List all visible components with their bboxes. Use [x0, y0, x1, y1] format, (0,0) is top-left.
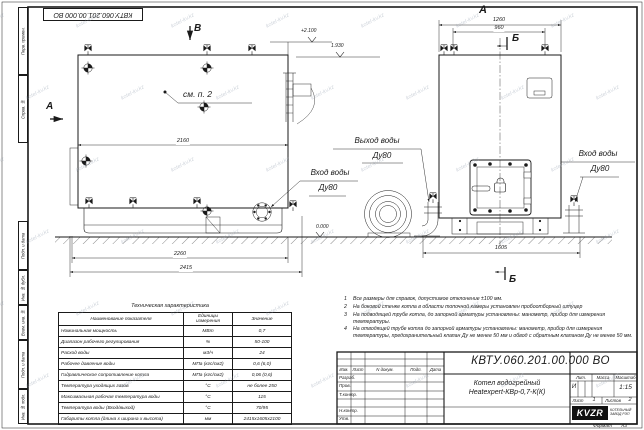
spec-row: Температура уходящих газов°Сне более 250: [59, 381, 292, 392]
tb-lit-value: И: [570, 384, 578, 390]
inlet-dn-front: Ду80: [591, 165, 610, 173]
elev-flue: 1.930: [330, 44, 345, 49]
spec-cell: Максимальная рабочая температура воды: [59, 392, 184, 403]
note-item: 1Все размеры для справок, допустимое отк…: [344, 296, 636, 303]
note-text: На отводящей трубе котла до запорной арм…: [353, 326, 636, 340]
tb-col-list: Лист: [351, 368, 365, 372]
top-stamp: КВТУ.060.201.00.000 ВО: [43, 8, 143, 21]
spec-cell: 0,06 (0,6): [233, 370, 292, 381]
tb-col-data: Дата: [427, 368, 444, 372]
spec-row: Температура воды (Вход/выход)°С70/95: [59, 403, 292, 414]
tb-sheets-value: 2: [625, 398, 635, 404]
spec-cell: м3/ч: [184, 348, 233, 359]
note-text: На подводящей трубе котла, до запорной а…: [353, 312, 636, 326]
spec-row: Максимальная рабочая температура воды°С1…: [59, 392, 292, 403]
spec-cell: °С: [184, 392, 233, 403]
outlet-dn: Ду80: [373, 152, 392, 160]
spec-cell: Номинальная мощность: [59, 326, 184, 337]
margin-box-vzam-inv: Взам. инв. №: [18, 305, 28, 340]
tb-row-tkontr: Т.контр.: [339, 393, 357, 398]
note-number: 4: [344, 326, 353, 340]
note-number: 1: [344, 296, 353, 303]
product-name-line2: Heatexpert-КВр-0,7-К(К): [444, 389, 570, 396]
view-label-a-left: А: [46, 102, 53, 112]
spec-header-row: Наименование показателя Единицы измерени…: [59, 313, 292, 326]
drawing-sheet: КВТУ.060.201.00.000 ВО Перв. примен. Спр…: [0, 0, 644, 430]
dim-2160: 2160: [176, 139, 190, 145]
spec-cell: Расход воды: [59, 348, 184, 359]
tb-row-utv: Утв.: [339, 417, 349, 422]
view-label-v: В: [194, 24, 201, 34]
margin-label: Перв. примен.: [21, 27, 26, 55]
spec-row: Диапазон рабочего регулирования%50-100: [59, 337, 292, 348]
note-text: На боковой стенке котла в области топочн…: [353, 304, 636, 311]
spec-cell: Гидравлическое сопротивление котла: [59, 370, 184, 381]
note-text: Все размеры для справок, допустимое откл…: [353, 296, 636, 303]
spec-cell: 2415х1605х2100: [233, 414, 292, 425]
tb-col-ndoc: N докум.: [365, 368, 405, 372]
margin-box-sprav: Справ. №: [18, 75, 28, 143]
tb-sheets-label: Листов: [603, 399, 623, 403]
view-label-a-front: А: [479, 5, 487, 16]
spec-table-body: Номинальная мощностьМВт0,7Диапазон рабоч…: [59, 326, 292, 425]
text-layer: КВТУ.060.201.00.000 ВО Перв. примен. Спр…: [0, 0, 644, 430]
tb-col-izm: Изм.: [337, 368, 351, 372]
doc-number: КВТУ.060.201.00.000 ВО: [444, 356, 637, 368]
spec-cell: МПа (кгс/см2): [184, 359, 233, 370]
margin-label: Подп. и дата: [21, 232, 26, 258]
section-label-b-top: Б: [512, 34, 519, 44]
spec-row: Номинальная мощностьМВт0,7: [59, 326, 292, 337]
spec-row: Рабочее давление водыМПа (кгс/см2)0,6 (6…: [59, 359, 292, 370]
spec-cell: 0,7: [233, 326, 292, 337]
top-stamp-text: КВТУ.060.201.00.000 ВО: [53, 11, 132, 18]
margin-label: Инв. № подл.: [21, 393, 26, 419]
notes-list: 1Все размеры для справок, допустимое отк…: [344, 296, 636, 341]
spec-cell: Диапазон рабочего регулирования: [59, 337, 184, 348]
spec-header-units: Единицы измерения: [184, 313, 233, 326]
tb-sheet-value: 1: [588, 398, 600, 404]
spec-row: Гидравлическое сопротивление котлаМПа (к…: [59, 370, 292, 381]
margin-label: Подп. и дата: [21, 351, 26, 377]
tb-scale-value: 1:15: [614, 385, 637, 392]
spec-cell: Рабочее давление воды: [59, 359, 184, 370]
tb-sheet-label: Лист: [571, 399, 585, 403]
spec-header-name: Наименование показателя: [59, 313, 184, 326]
spec-cell: 0,6 (6,0): [233, 359, 292, 370]
spec-cell: Габариты котла (длина х ширина х высота): [59, 414, 184, 425]
spec-cell: мм: [184, 414, 233, 425]
spec-cell: 50-100: [233, 337, 292, 348]
section-label-b-bottom: Б: [509, 275, 516, 285]
elev-top: +2.100: [300, 29, 317, 34]
margin-box-podp-data-2: Подп. и дата: [18, 340, 28, 389]
inlet-dn-side: Ду80: [319, 184, 338, 192]
spec-cell: 70/95: [233, 403, 292, 414]
tb-scale-label: Масштаб: [614, 376, 637, 380]
spec-cell: 24: [233, 348, 292, 359]
margin-label: Справ. №: [21, 99, 26, 119]
spec-cell: не более 250: [233, 381, 292, 392]
spec-cell: МПа (кгс/см2): [184, 370, 233, 381]
spec-cell: °С: [184, 403, 233, 414]
tb-row-prov: Пров.: [339, 384, 351, 389]
spec-table: Наименование показателя Единицы измерени…: [58, 312, 292, 425]
tb-lit-label: Лит.: [570, 376, 592, 380]
note-number: 2: [344, 304, 353, 311]
inlet-label-front: Вход воды: [579, 150, 618, 158]
inlet-label-side: Вход воды: [311, 169, 350, 177]
spec-row: Расход водым3/ч24: [59, 348, 292, 359]
margin-label: Взам. инв. №: [21, 309, 26, 335]
kvzr-logo-caption: КОТЕЛЬНЫЙ ЗАВОД РЭП: [610, 408, 638, 416]
dim-1260: 1260: [492, 18, 506, 24]
product-name-line1: Котел водогрейный: [444, 380, 570, 387]
margin-box-inv-podl: Инв. № подл.: [18, 389, 28, 424]
spec-cell: МВт: [184, 326, 233, 337]
spec-cell: 115: [233, 392, 292, 403]
kvzr-caption-line2: ЗАВОД РЭП: [610, 412, 638, 416]
spec-cell: %: [184, 337, 233, 348]
spec-cell: °С: [184, 381, 233, 392]
format-label: Формат: [560, 425, 612, 430]
note-item: 2На боковой стенке котла в области топоч…: [344, 304, 636, 311]
spec-header-value: Значение: [233, 313, 292, 326]
outlet-label: Выход воды: [355, 137, 400, 145]
spec-row: Габариты котла (длина х ширина х высота)…: [59, 414, 292, 425]
spec-table-title: Техническая характеристика: [58, 303, 282, 309]
tb-row-razrab: Разраб.: [339, 376, 355, 381]
kvzr-logo: KVZR: [572, 406, 608, 420]
spec-cell: Температура воды (Вход/выход): [59, 403, 184, 414]
dim-1605: 1605: [494, 246, 508, 252]
tb-row-nkontr: Н.контр.: [339, 409, 358, 414]
format-value: А3: [616, 425, 632, 430]
margin-box-inv-dubl: Инв. № дубл.: [18, 270, 28, 305]
note-item: 4На отводящей трубе котла до запорной ар…: [344, 326, 636, 340]
note-number: 3: [344, 312, 353, 326]
elev-ground: 0.000: [315, 225, 330, 230]
dim-2415: 2415: [179, 266, 193, 272]
dim-960: 960: [493, 26, 504, 32]
kvzr-logo-text: KVZR: [577, 408, 604, 418]
note-item: 3На подводящей трубе котла, до запорной …: [344, 312, 636, 326]
tb-col-podp: Подп.: [405, 368, 427, 372]
see-note-callout: см. п. 2: [183, 90, 212, 99]
tb-mass-label: Масса: [592, 376, 614, 380]
spec-cell: Температура уходящих газов: [59, 381, 184, 392]
margin-box-perv-primen: Перв. примен.: [18, 7, 28, 75]
margin-label: Инв. № дубл.: [21, 274, 26, 300]
dim-2260: 2260: [173, 252, 187, 258]
margin-box-podp-data-1: Подп. и дата: [18, 221, 28, 270]
